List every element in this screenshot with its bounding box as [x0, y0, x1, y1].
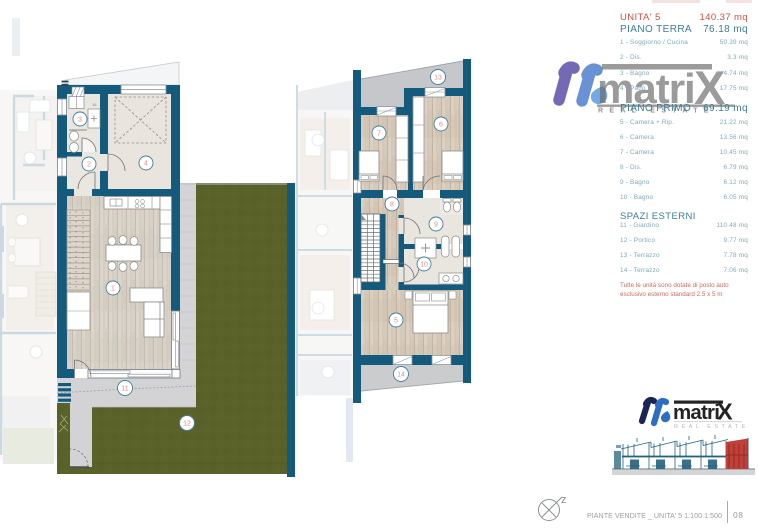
svg-text:11: 11 — [121, 386, 128, 393]
svg-text:6: 6 — [439, 122, 443, 129]
svg-text:4: 4 — [144, 161, 148, 168]
svg-text:7: 7 — [377, 131, 381, 138]
svg-text:5: 5 — [394, 318, 398, 325]
svg-text:3: 3 — [78, 117, 82, 124]
svg-text:matri: matri — [673, 401, 719, 424]
svg-text:X: X — [717, 399, 733, 425]
svg-text:14: 14 — [397, 372, 405, 379]
svg-text:13: 13 — [434, 75, 442, 82]
svg-text:z: z — [561, 494, 567, 506]
svg-text:REAL ESTATE: REAL ESTATE — [674, 424, 749, 430]
svg-text:9: 9 — [434, 222, 438, 229]
svg-text:12: 12 — [183, 421, 191, 428]
svg-text:8: 8 — [390, 202, 394, 209]
svg-text:16: 16 — [92, 102, 97, 107]
svg-text:2: 2 — [87, 162, 91, 169]
svg-text:1: 1 — [111, 286, 115, 293]
svg-text:10: 10 — [420, 262, 428, 269]
svg-text:PIANTE VENDITE _ UNITA' 5 1:10: PIANTE VENDITE _ UNITA' 5 1:100 1:500 — [587, 511, 722, 520]
svg-text:08: 08 — [733, 510, 743, 520]
